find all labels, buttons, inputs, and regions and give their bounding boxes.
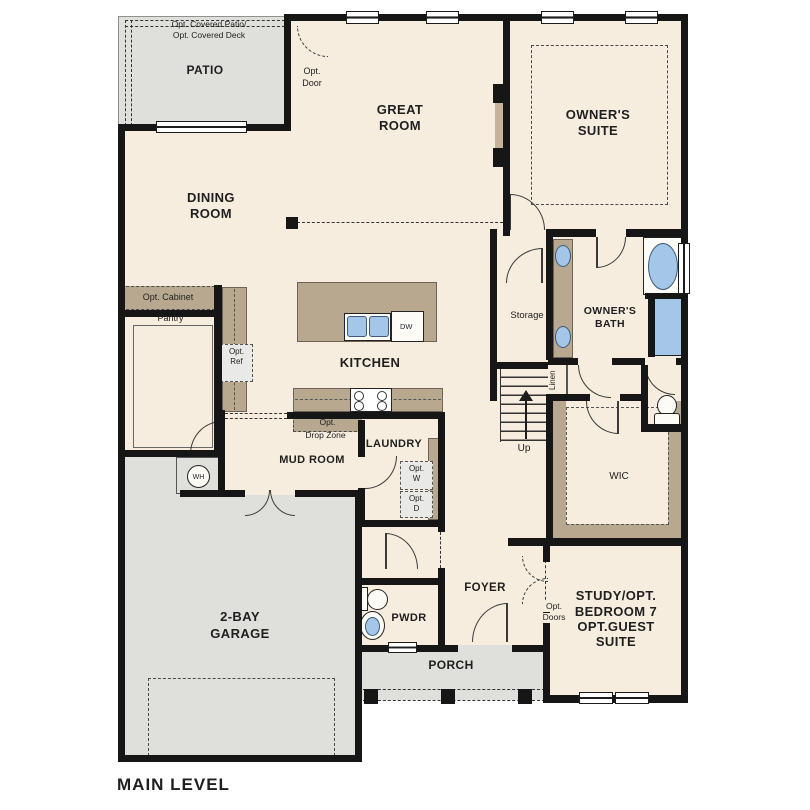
patio-opt-outline — [125, 20, 126, 126]
wall — [355, 490, 362, 762]
water-heater: WH — [187, 465, 210, 488]
wall — [575, 394, 590, 401]
bathtub-basin — [648, 243, 678, 290]
mudroom-cased-opening — [225, 418, 287, 419]
opt-door-label: Opt. — [298, 66, 326, 76]
owners-suite-label: OWNER'S — [553, 108, 643, 123]
dishwasher: DW — [391, 311, 424, 342]
drop-zone-label: Opt. — [293, 418, 362, 428]
vanity-sink — [555, 326, 571, 348]
mud-room-label: MUD ROOM — [259, 454, 365, 467]
opt-ref-label: Opt. — [221, 347, 252, 357]
window — [579, 692, 613, 704]
wall — [546, 229, 553, 360]
wall — [620, 394, 641, 401]
study-label: SUITE — [556, 635, 676, 650]
wall — [503, 21, 510, 236]
opt-washer-label: W — [401, 474, 432, 484]
wall — [490, 229, 497, 401]
pwdr-label: PWDR — [387, 612, 431, 625]
wic-label: WIC — [594, 471, 644, 483]
wall — [118, 755, 362, 762]
fireplace — [493, 148, 510, 167]
vanity-sink — [555, 245, 571, 267]
patio-label: PATIO — [160, 64, 250, 78]
wall — [118, 124, 125, 762]
staircase — [500, 369, 548, 442]
wall — [641, 424, 688, 432]
front-door-leaf — [506, 603, 508, 642]
wall — [118, 450, 225, 457]
linen-shelf-line — [566, 364, 568, 395]
window — [625, 11, 658, 24]
wall — [358, 520, 445, 527]
wall — [508, 538, 688, 546]
study-label: OPT.GUEST — [556, 620, 676, 635]
dining-room-label: ROOM — [171, 207, 251, 222]
stair-arrow-head — [519, 390, 533, 401]
opt-door-label: Door — [298, 78, 326, 88]
wall — [512, 645, 545, 652]
kitchen-label: KITCHEN — [330, 356, 410, 371]
window — [346, 11, 379, 24]
wall — [358, 578, 445, 585]
patio-opt-outline — [131, 20, 132, 126]
garage-label: 2-BAY — [180, 610, 300, 625]
owners-suite-label: SUITE — [553, 124, 643, 139]
wall — [648, 297, 655, 357]
opt-dryer: Opt. D — [400, 491, 433, 518]
water-heater-label: WH — [193, 474, 205, 481]
wall — [546, 394, 553, 546]
laundry-label: LAUNDRY — [357, 438, 431, 451]
foyer-label: FOYER — [454, 582, 516, 595]
stair-arrow — [525, 399, 527, 439]
window — [541, 11, 574, 24]
shower — [654, 298, 683, 356]
opt-dryer-label: D — [401, 504, 432, 514]
wall — [438, 585, 445, 652]
storage-door-leaf — [541, 248, 543, 283]
window — [426, 11, 459, 24]
patio-sliding-door — [156, 121, 247, 133]
wall — [438, 568, 445, 585]
column-post — [286, 217, 298, 229]
window — [678, 243, 690, 294]
porch-column — [441, 689, 455, 704]
great-room-label: ROOM — [360, 119, 440, 134]
pantry-label: Pantry — [143, 313, 198, 323]
wic-door-leaf — [617, 401, 619, 434]
kitchen-sink-basin — [347, 316, 367, 337]
study-label: STUDY/OPT. — [556, 589, 676, 604]
owners-bath-label: BATH — [579, 318, 641, 330]
cooktop — [350, 388, 392, 412]
wall — [641, 365, 648, 426]
opt-refrigerator: Opt. Ref — [220, 344, 253, 382]
patio-note: Opt. Covered Patio/ — [149, 20, 269, 30]
wic-shelving — [553, 524, 681, 538]
closet-door-leaf — [385, 533, 387, 569]
wall — [548, 229, 596, 237]
wall — [612, 358, 645, 365]
up-label: Up — [506, 443, 542, 455]
wall — [490, 362, 548, 369]
wall — [438, 520, 445, 532]
wall — [438, 414, 445, 527]
closet-opt-wall — [440, 532, 441, 568]
study-label: BEDROOM 7 — [556, 605, 676, 620]
greatroom-kitchen-separator — [297, 222, 503, 223]
window — [615, 692, 649, 704]
owners-bath-label: OWNER'S — [579, 305, 641, 317]
opt-dryer-label: Opt. — [401, 494, 432, 504]
opt-washer: Opt. W — [400, 461, 433, 490]
opt-cabinet-label: Opt. Cabinet — [123, 292, 213, 302]
linen-label: Linen — [548, 362, 561, 398]
opt-ref-label: Ref — [221, 357, 252, 367]
kitchen-sink-basin — [369, 316, 389, 337]
bath-door-leaf — [596, 237, 598, 268]
fireplace — [493, 84, 510, 103]
porch-column — [518, 689, 532, 704]
porch-column — [364, 689, 378, 704]
great-room-label: GREAT — [360, 103, 440, 118]
drop-zone-label: Drop Zone — [288, 431, 363, 441]
dining-room-label: DINING — [171, 191, 251, 206]
floor-plan: DW Opt. Ref Opt. W Opt. D WH — [0, 0, 810, 810]
plan-title: MAIN LEVEL — [117, 775, 337, 795]
dishwasher-label: DW — [399, 322, 414, 331]
garage-label: GARAGE — [180, 627, 300, 642]
patio-note: Opt. Covered Deck — [149, 31, 269, 41]
pwdr-sink — [365, 617, 380, 636]
wall — [543, 546, 550, 562]
storage-label: Storage — [500, 311, 554, 322]
pwdr-toilet-bowl — [367, 589, 388, 610]
wall — [214, 285, 222, 457]
wic-shelving — [553, 401, 566, 538]
opt-washer-label: Opt. — [401, 464, 432, 474]
wall — [676, 358, 688, 365]
window — [388, 642, 417, 653]
mudroom-cased-opening — [225, 413, 287, 414]
porch-label: PORCH — [415, 659, 487, 673]
wall — [284, 14, 291, 131]
wall — [180, 490, 245, 497]
wall — [626, 229, 688, 237]
garage-door-outline — [148, 678, 335, 756]
